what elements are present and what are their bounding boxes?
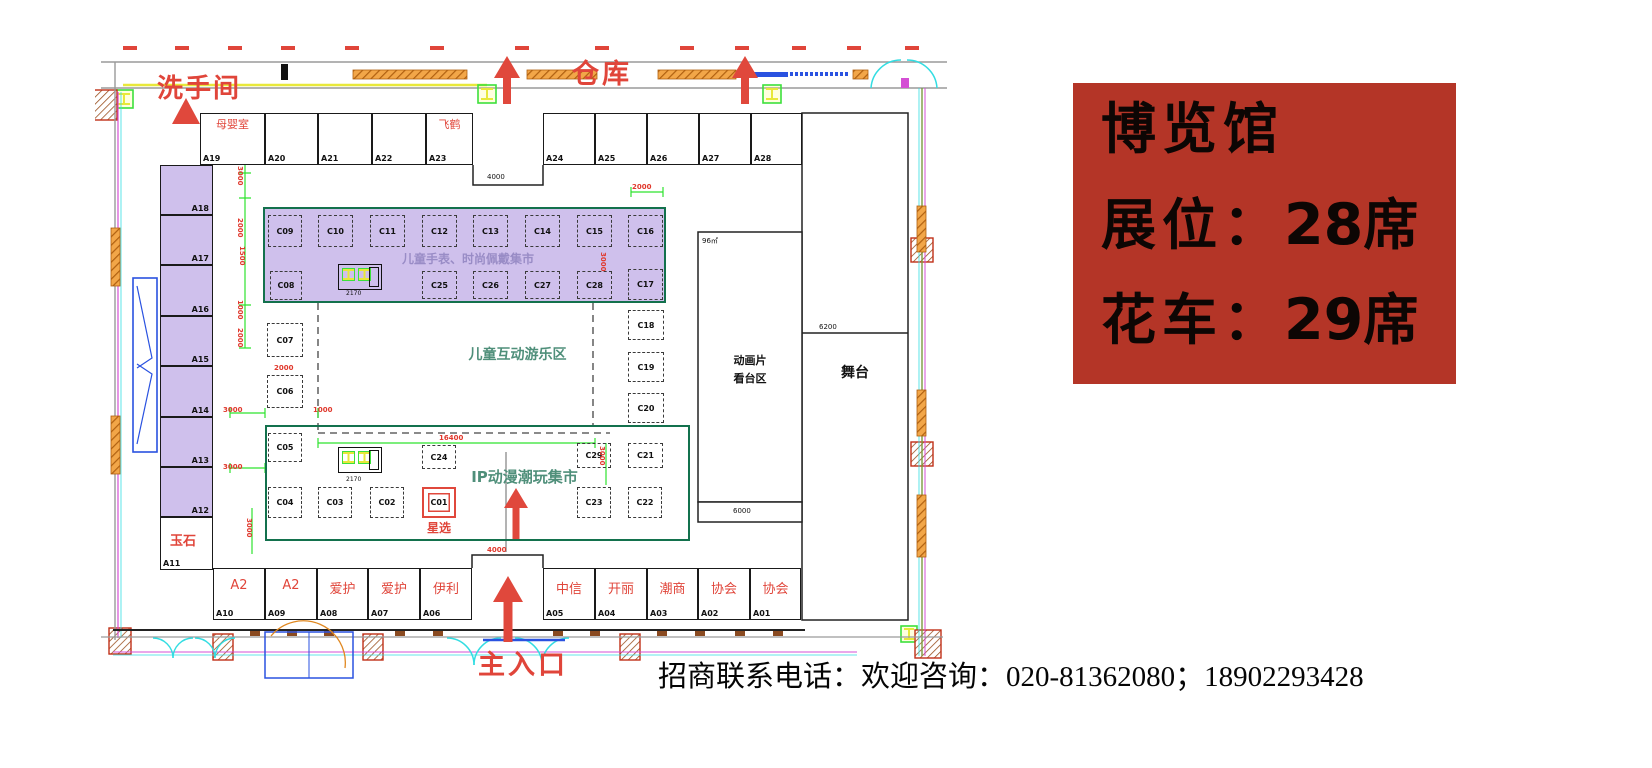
booth-A01: 协会A01 <box>750 568 801 620</box>
booth-C01: C01 <box>422 487 456 518</box>
booth-C22: C22 <box>628 487 662 518</box>
card-booth-count: 展位：28席 <box>1101 192 1424 262</box>
booth-A07: 爱护A07 <box>368 568 420 620</box>
left-wall <box>111 62 157 640</box>
booth-A14: A14 <box>160 366 213 417</box>
anim-area-label-line1: 动画片 <box>698 352 802 368</box>
booth-A12: A12 <box>160 467 213 517</box>
booth-A02: 协会A02 <box>698 568 750 620</box>
kids-play-title: 儿童互动游乐区 <box>450 344 585 364</box>
area-size-label: 96㎡ <box>702 236 718 246</box>
booth-A05: 中信A05 <box>543 568 595 620</box>
booth-C02: C02 <box>370 487 404 518</box>
booth-C11: C11 <box>370 215 405 247</box>
contact-line: 招商联系电话：欢迎咨询：020-81362080；18902293428 <box>658 653 1364 695</box>
booth-A09: A2A09 <box>265 568 317 620</box>
booth-C28: C28 <box>577 271 612 299</box>
booth-A15: A15 <box>160 316 213 366</box>
booth-C12: C12 <box>422 215 457 247</box>
slide: 母婴室 A19 A20 A21 A22 飞鹤 A23 A24 A25 A26 A… <box>0 0 1652 768</box>
card-float-count: 花车：29席 <box>1101 287 1424 357</box>
floor-plan: 母婴室 A19 A20 A21 A22 飞鹤 A23 A24 A25 A26 A… <box>95 40 955 685</box>
door-arc-icon <box>907 60 937 88</box>
warehouse-label: 仓库 <box>572 52 632 91</box>
escalator-icon <box>338 447 382 473</box>
booth-C07: C07 <box>267 323 303 357</box>
star-select-label: 星选 <box>420 519 458 536</box>
exhibition-info-card: 博览馆 展位：28席 花车：29席 <box>1073 83 1456 384</box>
booth-C10: C10 <box>318 215 353 247</box>
watch-market-title: 儿童手表、时尚佩戴集市 <box>383 250 553 267</box>
booth-C24: C24 <box>422 445 456 469</box>
booth-C04: C04 <box>268 487 302 518</box>
booth-A26: A26 <box>647 113 699 165</box>
door-arc-icon <box>871 60 901 88</box>
booth-C26: C26 <box>473 271 508 299</box>
booth-A28: A28 <box>751 113 802 165</box>
booth-A08: 爱护A08 <box>317 568 368 620</box>
booth-A19: 母婴室 A19 <box>200 113 265 165</box>
booth-C14: C14 <box>525 215 560 247</box>
booth-A20: A20 <box>265 113 318 165</box>
stage-label: 舞台 <box>802 362 908 382</box>
booth-C21: C21 <box>628 443 663 468</box>
booth-A11: 玉石 A11 <box>160 517 213 570</box>
escalator-icon <box>338 264 382 290</box>
booth-A21: A21 <box>318 113 372 165</box>
booth-A03: 潮商A03 <box>647 568 698 620</box>
right-wall <box>917 88 926 656</box>
tenant-label: 飞鹤 <box>427 116 472 132</box>
booth-C03: C03 <box>318 487 352 518</box>
booth-A16: A16 <box>160 265 213 316</box>
booth-C08: C08 <box>270 271 302 300</box>
anim-area-label-line2: 看台区 <box>698 370 802 386</box>
booth-C23: C23 <box>577 487 611 518</box>
booth-A04: 开丽A04 <box>595 568 647 620</box>
main-entrance-label: 主入口 <box>478 643 568 682</box>
booth-A10: A2A10 <box>213 568 265 620</box>
booth-C17: C17 <box>628 269 663 300</box>
booth-C20: C20 <box>628 393 664 423</box>
booth-C25: C25 <box>422 271 457 299</box>
booth-C27: C27 <box>525 271 560 299</box>
booth-A13: A13 <box>160 417 213 467</box>
booth-A22: A22 <box>372 113 426 165</box>
booth-A06: 伊利A06 <box>420 568 472 620</box>
booth-A24: A24 <box>543 113 595 165</box>
warehouse-arrow-icon <box>494 56 520 104</box>
booth-C15: C15 <box>577 215 612 247</box>
booth-A25: A25 <box>595 113 647 165</box>
booth-A23: 飞鹤 A23 <box>426 113 473 165</box>
booth-C13: C13 <box>473 215 508 247</box>
booth-A18: A18 <box>160 165 213 215</box>
play-area-boundary <box>318 303 610 433</box>
tenant-label: 玉石 <box>170 530 196 549</box>
ip-market-title: IP动漫潮玩集市 <box>457 466 592 487</box>
door-icon <box>133 278 157 452</box>
booth-A17: A17 <box>160 215 213 265</box>
booth-A27: A27 <box>699 113 751 165</box>
booth-C18: C18 <box>628 310 664 340</box>
warehouse-arrow-icon <box>732 56 758 104</box>
tenant-label: 母婴室 <box>201 116 264 132</box>
dimension-ticks <box>123 46 919 50</box>
main-entrance-arrow-icon <box>493 576 523 642</box>
booth-C09: C09 <box>268 215 302 247</box>
booth-C19: C19 <box>628 352 664 382</box>
booth-C05: C05 <box>268 433 302 462</box>
booth-C16: C16 <box>628 215 663 247</box>
card-title: 博览馆 <box>1101 97 1284 167</box>
restroom-label: 洗手间 <box>157 68 241 105</box>
booth-C06: C06 <box>267 375 303 408</box>
